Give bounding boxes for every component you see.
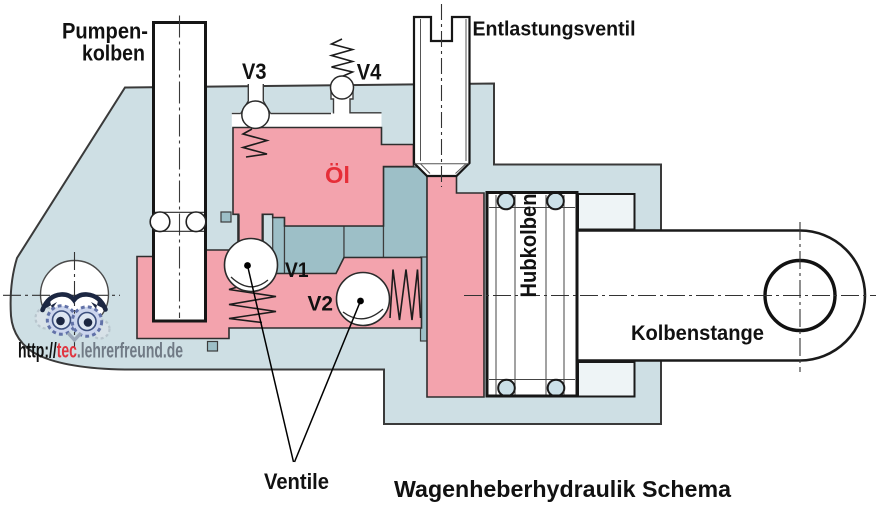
svg-text:kolben: kolben: [82, 41, 145, 66]
svg-text:V4: V4: [357, 60, 382, 85]
svg-text:Kolbenstange: Kolbenstange: [631, 322, 764, 345]
svg-text:V3: V3: [242, 59, 267, 84]
svg-text:Öl: Öl: [325, 162, 350, 188]
svg-text:Wagenheberhydraulik Schema: Wagenheberhydraulik Schema: [394, 476, 731, 502]
svg-text:V2: V2: [308, 293, 334, 316]
svg-text:Entlastungsventil: Entlastungsventil: [473, 18, 636, 41]
svg-text:Ventile: Ventile: [264, 469, 329, 494]
svg-text:V1: V1: [285, 259, 309, 282]
svg-text:http://tec.lehrerfreund.de: http://tec.lehrerfreund.de: [18, 340, 183, 363]
svg-text:Hubkolben: Hubkolben: [516, 194, 541, 298]
